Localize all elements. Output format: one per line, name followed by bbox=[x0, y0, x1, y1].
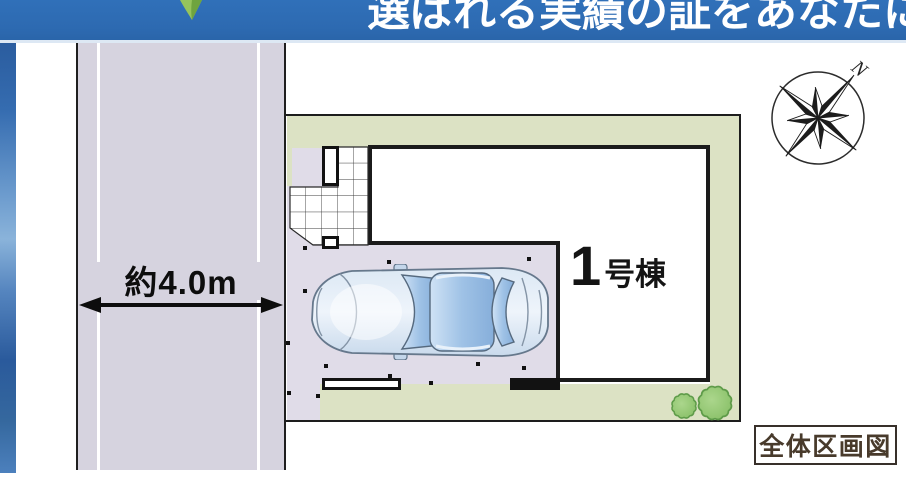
page-photo-edge bbox=[0, 40, 16, 473]
plan-caption-box: 全体区画図 bbox=[754, 425, 897, 465]
site-plan-screenshot: 選ばれる実績の証をあなたにも 約4.0m bbox=[0, 0, 906, 484]
unit-number: 1 bbox=[570, 238, 601, 294]
car-top-view-icon bbox=[306, 264, 552, 360]
compass-rose-icon: N bbox=[748, 50, 888, 190]
promo-headline: 選ばれる実績の証をあなたにも bbox=[367, 0, 906, 34]
leaf-icon bbox=[178, 0, 206, 22]
promo-banner: 選ばれる実績の証をあなたにも bbox=[0, 0, 906, 43]
unit-suffix: 号棟 bbox=[604, 259, 666, 290]
road: 約4.0m bbox=[76, 42, 286, 470]
garden-wall-west bbox=[322, 378, 401, 390]
lot-boundary-north bbox=[286, 114, 741, 116]
lot-boundary-east bbox=[739, 114, 741, 422]
garden-wall-east bbox=[510, 378, 560, 390]
road-edge-line bbox=[257, 300, 260, 470]
porch-step bbox=[322, 146, 339, 186]
bush-icon bbox=[658, 380, 746, 428]
road-edge-line bbox=[97, 300, 100, 470]
entrance-step bbox=[322, 236, 339, 249]
double-arrow-icon bbox=[78, 294, 284, 316]
unit-label: 1 号棟 bbox=[570, 238, 666, 294]
plan-caption: 全体区画図 bbox=[759, 427, 892, 463]
north-label: N bbox=[846, 56, 872, 83]
road-edge-line bbox=[97, 42, 100, 262]
landscape-strip-east bbox=[710, 116, 739, 421]
road-edge-line bbox=[257, 42, 260, 262]
